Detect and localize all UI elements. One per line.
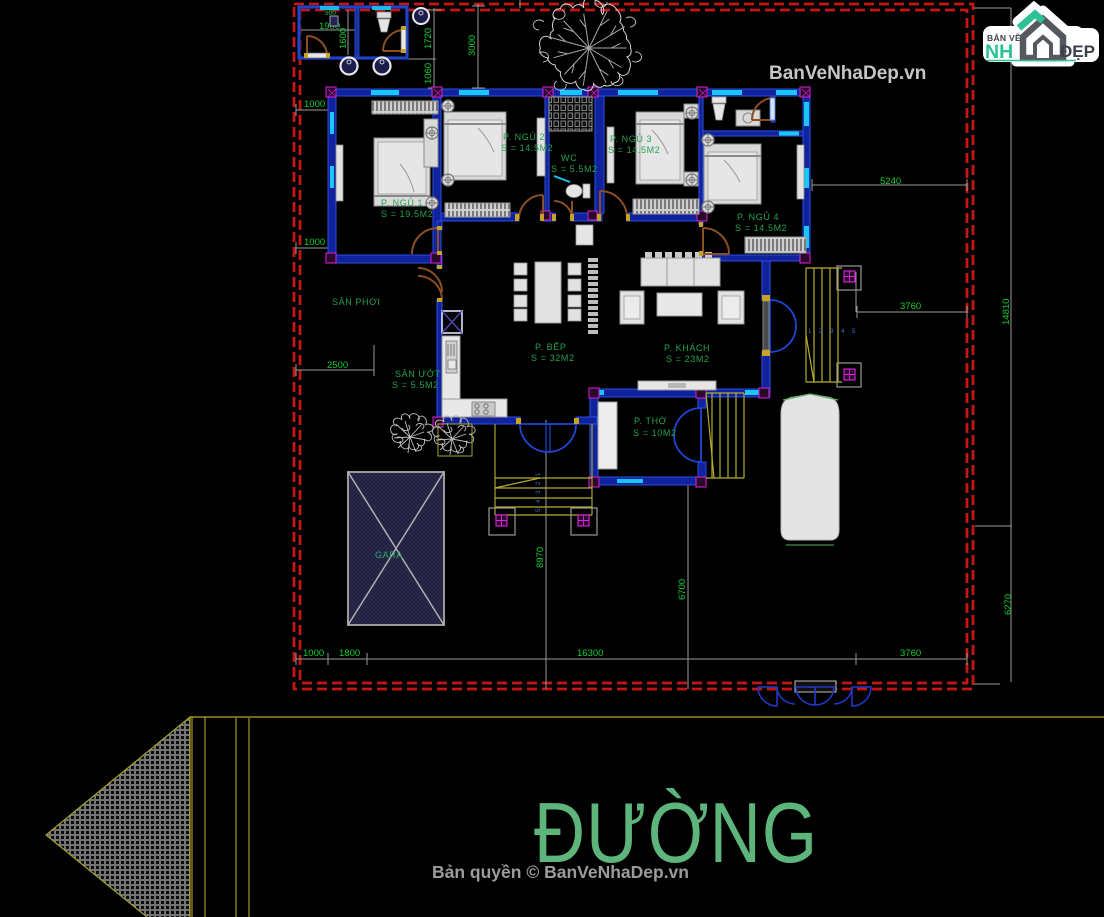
svg-text:S = 5.5M2: S = 5.5M2	[392, 380, 439, 390]
svg-text:ĐẸP: ĐẸP	[1060, 42, 1095, 61]
svg-text:5 4 3 2 1: 5 4 3 2 1	[536, 471, 542, 512]
svg-text:S = 14.5M2: S = 14.5M2	[608, 145, 660, 155]
svg-text:1060: 1060	[423, 63, 434, 84]
svg-text:8970: 8970	[535, 547, 546, 568]
svg-text:2500: 2500	[327, 360, 348, 371]
svg-text:1000: 1000	[303, 648, 324, 659]
svg-text:6270: 6270	[1003, 594, 1014, 615]
svg-text:BanVeNhaDep.vn: BanVeNhaDep.vn	[769, 63, 926, 84]
svg-text:GARA: GARA	[375, 550, 403, 560]
svg-text:1600: 1600	[338, 28, 349, 49]
svg-text:6700: 6700	[677, 579, 688, 600]
svg-text:1720: 1720	[423, 28, 434, 49]
svg-text:P. NGỦ 2: P. NGỦ 2	[503, 131, 545, 142]
svg-text:SÂN PHƠI: SÂN PHƠI	[332, 297, 381, 307]
svg-text:5240: 5240	[880, 176, 901, 187]
svg-text:1800: 1800	[339, 648, 360, 659]
svg-text:P. KHÁCH: P. KHÁCH	[664, 343, 710, 353]
svg-text:14810: 14810	[1001, 299, 1012, 325]
svg-text:3760: 3760	[900, 648, 921, 659]
svg-text:SÂN ƯỚT: SÂN ƯỚT	[395, 369, 441, 379]
svg-text:P. BẾP: P. BẾP	[535, 342, 566, 352]
svg-text:S = 32M2: S = 32M2	[531, 353, 575, 363]
svg-text:S = 10M2: S = 10M2	[633, 428, 677, 438]
svg-text:3000: 3000	[467, 35, 478, 56]
svg-text:NH: NH	[985, 41, 1013, 63]
svg-text:WC: WC	[561, 153, 577, 163]
svg-text:P. NGỦ 3: P. NGỦ 3	[610, 133, 652, 144]
svg-text:P. NGỦ 1: P. NGỦ 1	[381, 197, 423, 208]
svg-text:S = 14.5M2: S = 14.5M2	[735, 223, 787, 233]
svg-text:P. THỜ: P. THỜ	[634, 416, 667, 426]
svg-text:1000: 1000	[304, 99, 325, 110]
svg-text:S = 19.5M2: S = 19.5M2	[381, 209, 433, 219]
svg-text:1 2 3 4 5: 1 2 3 4 5	[808, 329, 858, 335]
svg-text:Bản quyền © BanVeNhaDep.vn: Bản quyền © BanVeNhaDep.vn	[432, 862, 689, 882]
svg-text:16300: 16300	[577, 648, 603, 659]
svg-text:S = 14.5M2: S = 14.5M2	[501, 143, 553, 153]
svg-text:S = 23M2: S = 23M2	[666, 354, 710, 364]
svg-text:P. NGỦ 4: P. NGỦ 4	[737, 211, 779, 222]
svg-text:1000: 1000	[304, 237, 325, 248]
svg-text:S = 5.5M2: S = 5.5M2	[551, 164, 598, 174]
svg-text:3760: 3760	[900, 301, 921, 312]
